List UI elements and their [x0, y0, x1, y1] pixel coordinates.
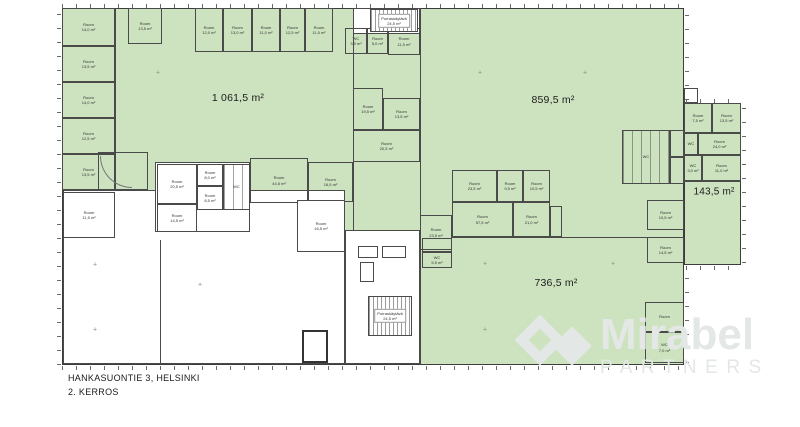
column-marker: +: [198, 282, 202, 289]
area-label-1061: 1 061,5 m²: [212, 92, 264, 104]
room: [360, 262, 374, 282]
room-label: Room 12,5 m²: [63, 119, 114, 153]
room-label: Room 11,0 m²: [253, 9, 279, 51]
wall-line: [452, 237, 684, 238]
room-label: Room 9,5 m²: [498, 171, 522, 201]
room-label: Room 7,5 m²: [685, 104, 711, 132]
watermark-brand: Mirabel: [600, 314, 800, 356]
room-label: WC 3,5 m²: [346, 29, 366, 53]
column-marker: +: [478, 70, 482, 77]
room-label: Room 44,5 m²: [251, 159, 307, 202]
room: Room 16,5 m²: [297, 200, 345, 252]
room: Room 19,5 m²: [353, 88, 383, 130]
room-label: Room 8,0 m²: [198, 165, 222, 185]
column-marker: +: [483, 327, 487, 334]
room-label: WC 3,0 m²: [685, 156, 701, 180]
room-label: Room 12,0 m²: [196, 9, 222, 51]
room-label: Room 57,5 m²: [453, 203, 512, 236]
room-label: Room 16,5 m²: [309, 163, 352, 201]
room-label: Room 10,5 m²: [524, 171, 549, 201]
room: WC 3,5 m²: [345, 28, 367, 54]
room: Room 12,0 m²: [195, 8, 223, 52]
stairwell-label: Porraskäytävä 24,5 m²: [374, 309, 406, 323]
area-label-859: 859,5 m²: [531, 94, 574, 106]
wall-line: [353, 8, 354, 230]
watermark-logo-icon: [512, 308, 596, 380]
room: Room 7,5 m²: [684, 103, 712, 133]
room-label: Room 14,0 m²: [63, 83, 114, 117]
floor-plan-canvas: Room 14,0 m²Room 13,5 m²Room 14,0 m²Room…: [0, 0, 800, 427]
column-marker: +: [93, 262, 97, 269]
room-label: Room 20,5 m²: [354, 131, 419, 161]
room: Room 21,0 m²: [513, 202, 550, 237]
column-marker: +: [483, 261, 487, 268]
room: Room 14,0 m²: [62, 8, 115, 46]
room: Room 20,5 m²: [157, 164, 197, 204]
room-label: Room 13,5 m²: [129, 9, 161, 43]
room: [550, 206, 562, 237]
room: Room 9,5 m²: [497, 170, 523, 202]
room-label: Room 14,0 m²: [63, 9, 114, 45]
room: Room 12,5 m²: [62, 118, 115, 154]
column-marker: +: [583, 70, 587, 77]
floor-line: 2. KERROS: [68, 385, 200, 399]
window-ticks: [685, 10, 689, 100]
area-label-736: 736,5 m²: [534, 277, 577, 289]
room: Room 11,0 m²: [702, 155, 741, 181]
room: [670, 130, 684, 157]
wall-line: [160, 240, 161, 364]
wall-line: [684, 181, 741, 182]
room-label: WC: [623, 131, 669, 183]
area-label-143: 143,5 m²: [693, 187, 734, 198]
window-ticks: [686, 266, 740, 270]
room: Room 8,5 m²: [197, 186, 223, 210]
wall-line: [420, 8, 421, 365]
page: { "title": { "address": "HANKASUONTIE 3,…: [0, 0, 800, 427]
room-label: Room 13,5 m²: [384, 99, 419, 129]
room: Room 57,5 m²: [452, 202, 513, 237]
room-label: Room 11,0 m²: [703, 156, 740, 180]
watermark-text: Mirabel PARTNERS: [600, 314, 800, 379]
room-label: Room 5,0 m²: [368, 29, 387, 53]
room-label: Room 13,5 m²: [713, 104, 740, 132]
room-label: Room 14,5 m²: [648, 238, 683, 262]
room: [302, 330, 328, 363]
room: Room 12,5 m²: [280, 8, 305, 52]
room-label: Room 13,5 m²: [63, 47, 114, 81]
room-label: Room 13,0 m²: [224, 9, 251, 51]
room-label: Room 8,5 m²: [198, 187, 222, 209]
room-label: Room 11,5 m²: [306, 9, 332, 51]
room-label: Room 23,5 m²: [453, 171, 496, 201]
window-ticks: [686, 99, 740, 103]
room: Room 11,5 m²: [63, 192, 115, 238]
stairwell: Porraskäytävä 24,5 m²: [368, 296, 412, 336]
address-block: HANKASUONTIE 3, HELSINKI 2. KERROS: [68, 371, 200, 399]
room: [382, 246, 406, 258]
room-label: WC: [224, 165, 249, 209]
room-label: Room 24,0 m²: [699, 134, 740, 154]
room: Room 13,5 m²: [62, 46, 115, 82]
room: Room 10,5 m²: [523, 170, 550, 202]
column-marker: +: [156, 70, 160, 77]
stairwell: Porraskäytävä 24,5 m²: [370, 9, 418, 32]
watermark-subtitle: PARTNERS: [600, 357, 800, 379]
room: Room 11,0 m²: [252, 8, 280, 52]
room-label: Room 11,5 m²: [389, 29, 419, 54]
room: Room 23,5 m²: [452, 170, 497, 202]
room: WC 3,0 m²: [684, 155, 702, 181]
room: WC: [622, 130, 670, 184]
room: Room 44,5 m²: [250, 158, 308, 203]
window-ticks: [62, 4, 684, 8]
column-marker: +: [611, 261, 615, 268]
room-label: Room 12,5 m²: [281, 9, 304, 51]
room: Room 11,5 m²: [388, 28, 420, 55]
room-label: Room 19,5 m²: [354, 89, 382, 129]
room: Room 13,5 m²: [383, 98, 420, 130]
room-label: WC: [685, 134, 697, 154]
room: [422, 238, 452, 252]
room: WC: [684, 133, 698, 155]
room: Room 8,0 m²: [197, 164, 223, 186]
room-label: WC 5,5 m²: [423, 253, 451, 267]
room-label: Room 20,5 m²: [158, 165, 196, 203]
column-marker: +: [93, 327, 97, 334]
room: Room 14,5 m²: [647, 237, 684, 263]
room: WC: [223, 164, 250, 210]
room: Room 24,0 m²: [698, 133, 741, 155]
room-label: Room 10,5 m²: [648, 201, 683, 229]
room: Room 13,0 m²: [223, 8, 252, 52]
room-label: Room 14,5 m²: [158, 205, 196, 231]
room: [358, 246, 378, 258]
window-ticks: [57, 8, 61, 365]
room: Room 16,5 m²: [308, 162, 353, 202]
room-label: Room 16,5 m²: [298, 201, 344, 251]
room: Room 13,5 m²: [712, 103, 741, 133]
room: Room 14,5 m²: [157, 204, 197, 232]
room-label: Room 11,5 m²: [64, 193, 114, 237]
stairwell-label: Porraskäytävä 24,5 m²: [378, 13, 410, 27]
room: [670, 157, 684, 184]
room: WC 5,5 m²: [422, 252, 452, 268]
room: Room 14,0 m²: [62, 82, 115, 118]
room: Room 13,5 m²: [128, 8, 162, 44]
room: Room 20,5 m²: [353, 130, 420, 162]
room: Room 11,5 m²: [305, 8, 333, 52]
room-label: Room 21,0 m²: [514, 203, 549, 236]
window-ticks: [742, 105, 746, 263]
address-line: HANKASUONTIE 3, HELSINKI: [68, 371, 200, 385]
room: Room 10,5 m²: [647, 200, 684, 230]
